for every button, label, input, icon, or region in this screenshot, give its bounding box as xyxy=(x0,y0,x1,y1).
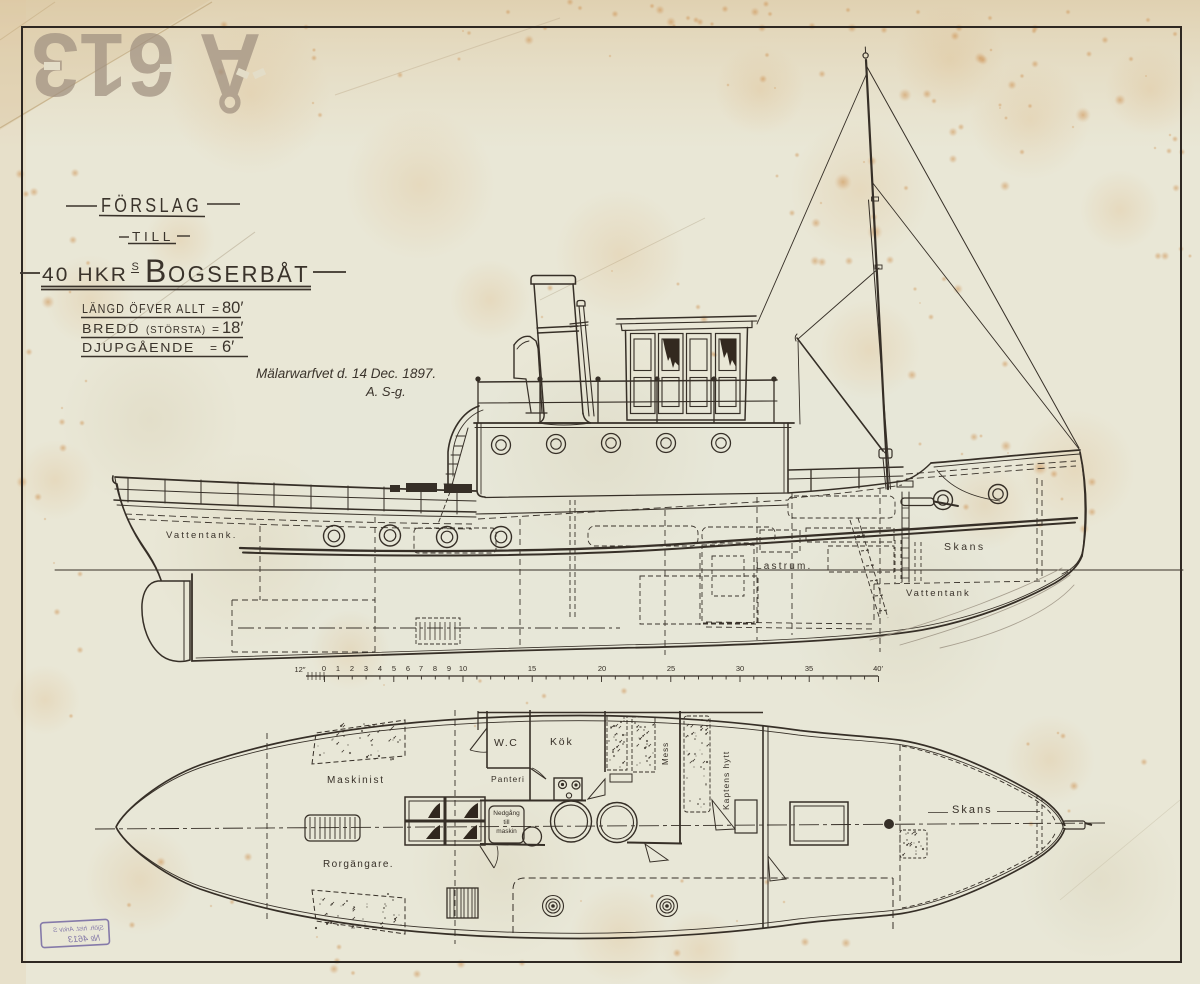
svg-text:40′: 40′ xyxy=(873,664,883,673)
svg-text:OGSERBÅT: OGSERBÅT xyxy=(168,260,310,287)
svg-text:Å 613: Å 613 xyxy=(31,14,261,114)
svg-text:6′: 6′ xyxy=(222,338,234,356)
svg-text:S: S xyxy=(132,261,139,273)
svg-text:30: 30 xyxy=(736,664,744,673)
svg-text:10: 10 xyxy=(459,664,467,673)
svg-text:7: 7 xyxy=(419,664,423,673)
svg-text:Skans: Skans xyxy=(952,804,993,816)
svg-text:LÄNGD ÖFVER ALLT: LÄNGD ÖFVER ALLT xyxy=(82,301,206,316)
svg-text:12″: 12″ xyxy=(295,665,306,674)
svg-text:BREDD: BREDD xyxy=(82,321,140,336)
svg-text:18′: 18′ xyxy=(222,319,243,337)
svg-text:25: 25 xyxy=(667,664,675,673)
svg-text:Mess: Mess xyxy=(661,742,670,765)
svg-text:Kaptens hytt: Kaptens hytt xyxy=(721,751,731,810)
svg-text:Nedgång: Nedgång xyxy=(493,809,520,817)
svg-text:4: 4 xyxy=(378,664,382,673)
svg-text:maskin: maskin xyxy=(496,828,517,835)
svg-text:(STÖRSTA): (STÖRSTA) xyxy=(146,324,206,336)
svg-text:2: 2 xyxy=(350,664,354,673)
svg-text:20: 20 xyxy=(598,664,606,673)
svg-text:Skans: Skans xyxy=(944,541,986,553)
svg-text:Vattentank.: Vattentank. xyxy=(166,530,238,541)
svg-text:Panteri: Panteri xyxy=(491,774,525,784)
svg-text:Kök: Kök xyxy=(550,736,574,748)
svg-text:till: till xyxy=(503,819,510,826)
svg-text:40 HKR: 40 HKR xyxy=(42,264,128,286)
svg-text:0: 0 xyxy=(322,664,326,673)
svg-text:Mälarwarfvet d. 14 Dec. 1897.: Mälarwarfvet d. 14 Dec. 1897. xyxy=(256,366,436,381)
svg-text:Lastrum.: Lastrum. xyxy=(756,561,813,572)
svg-text:8: 8 xyxy=(433,664,437,673)
svg-text:35: 35 xyxy=(805,664,813,673)
svg-text:FÖRSLAG: FÖRSLAG xyxy=(101,195,202,217)
svg-text:9: 9 xyxy=(447,664,451,673)
svg-text:Rorgängare.: Rorgängare. xyxy=(323,859,394,870)
svg-text:№ 4613: № 4613 xyxy=(68,933,101,945)
svg-text:80′: 80′ xyxy=(222,299,243,317)
svg-text:TILL: TILL xyxy=(132,229,174,244)
svg-text:15: 15 xyxy=(528,664,536,673)
svg-text:Maskinist: Maskinist xyxy=(327,775,385,786)
svg-text:1: 1 xyxy=(336,664,340,673)
svg-text:3: 3 xyxy=(364,664,368,673)
svg-text:=: = xyxy=(212,322,219,336)
svg-text:DJUPGÅENDE: DJUPGÅENDE xyxy=(82,340,195,355)
svg-text:Vattentank: Vattentank xyxy=(906,588,971,599)
svg-text:A. S-g.: A. S-g. xyxy=(365,384,406,399)
svg-text:=: = xyxy=(212,302,219,316)
svg-text:=: = xyxy=(210,341,217,355)
svg-text:5: 5 xyxy=(392,664,396,673)
svg-text:W.C: W.C xyxy=(494,737,518,749)
svg-text:6: 6 xyxy=(406,664,410,673)
svg-text:B: B xyxy=(145,253,166,289)
